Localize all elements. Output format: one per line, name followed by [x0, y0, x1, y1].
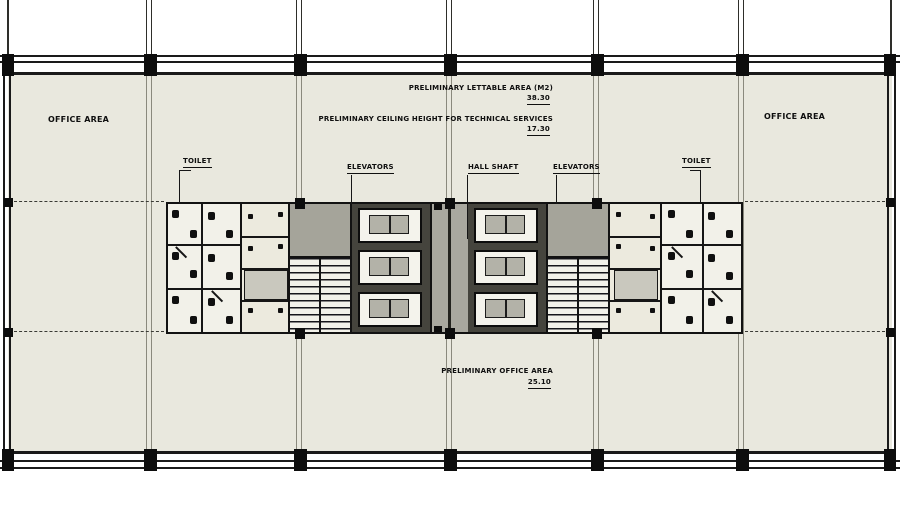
toilet-fixture — [726, 272, 733, 280]
wall-node — [592, 328, 602, 339]
toilet-fixture — [708, 298, 715, 306]
toilet-partition — [702, 204, 704, 332]
area-note-top-2-value: 17.30 — [527, 125, 550, 136]
toilet-fixture — [686, 316, 693, 324]
wall-node — [4, 328, 13, 337]
service-fixture — [650, 308, 655, 313]
toilet-partition — [168, 244, 240, 246]
gridline-b-floor — [151, 74, 152, 451]
gridline-f-top — [743, 0, 744, 55]
area-note-bottom: PRELIMINARY OFFICE AREA — [441, 367, 553, 376]
service-partition — [242, 236, 288, 238]
leader-toilet-right-foot — [690, 170, 701, 171]
column — [144, 54, 157, 76]
toilet-partition — [168, 288, 240, 290]
gridline-f-top — [738, 0, 739, 55]
wall-node — [886, 328, 895, 337]
left-end-wall-outer — [3, 55, 5, 470]
stair-left — [290, 204, 352, 332]
corridor-wall — [448, 204, 451, 332]
toilet-fixture — [668, 252, 675, 260]
service-fixture — [278, 244, 283, 249]
area-note-top-2: PRELIMINARY CEILING HEIGHT FOR TECHNICAL… — [319, 115, 553, 124]
elevator-shaft — [358, 292, 422, 327]
elevators-label-right: ELEVATORS — [553, 163, 600, 174]
right-end-wall-outer — [894, 55, 896, 470]
service-partition — [242, 300, 288, 302]
toilet-label-right: TOILET — [682, 157, 711, 168]
leader-hall-shaft — [467, 175, 468, 239]
service-rooms-right — [610, 204, 662, 332]
wall-stub — [434, 326, 442, 332]
gridline-b-top — [146, 0, 147, 55]
leader-elevators-left — [351, 175, 352, 204]
area-note-bottom-value: 25.10 — [528, 378, 551, 389]
core-top-dashed-line-right — [745, 201, 885, 202]
left-corner-gridline-top — [7, 0, 9, 55]
service-fixture — [248, 214, 253, 219]
elevator-car — [485, 299, 525, 318]
toilet-fixture — [668, 296, 675, 304]
service-fixture — [616, 308, 621, 313]
right-corner-gridline-top — [890, 0, 892, 55]
service-partition — [610, 300, 660, 302]
wall-node — [592, 198, 602, 209]
wall-node — [4, 198, 13, 207]
gridline-e-top — [598, 0, 599, 55]
toilet-fixture — [172, 296, 179, 304]
hall-shaft-corridor — [432, 204, 468, 332]
service-shaft — [244, 270, 288, 300]
service-fixture — [650, 214, 655, 219]
elevator-shaft — [358, 208, 422, 243]
elevator-car — [369, 299, 409, 318]
gridline-d-top — [446, 0, 447, 55]
toilet-room-left — [168, 204, 242, 332]
column — [736, 449, 749, 471]
column — [144, 449, 157, 471]
elevator-car — [485, 257, 525, 276]
toilet-fixture — [726, 230, 733, 238]
toilet-fixture — [208, 212, 215, 220]
column — [591, 449, 604, 471]
service-fixture — [248, 308, 253, 313]
toilet-fixture — [686, 230, 693, 238]
toilet-fixture — [172, 210, 179, 218]
wall-stub — [434, 204, 442, 210]
elevator-shaft — [474, 208, 538, 243]
toilet-fixture — [208, 254, 215, 262]
elevator-bank-right — [468, 204, 548, 332]
hall-shaft-label: HALL SHAFT — [468, 163, 519, 174]
toilet-partition — [662, 244, 741, 246]
stair-divider-right — [577, 258, 579, 332]
service-rooms-left — [242, 204, 290, 332]
column — [2, 449, 14, 471]
toilet-fixture — [726, 316, 733, 324]
toilet-fixture — [226, 316, 233, 324]
column — [444, 54, 457, 76]
wall-node — [445, 198, 455, 209]
gridline-c-top — [301, 0, 302, 55]
toilet-fixture — [686, 270, 693, 278]
wall-node — [295, 198, 305, 209]
toilet-fixture — [226, 230, 233, 238]
service-shaft — [614, 270, 658, 300]
right-end-wall-inner — [887, 55, 889, 470]
area-note-top-1: PRELIMINARY LETTABLE AREA (M2) — [409, 84, 553, 93]
gridline-f-floor — [743, 74, 744, 451]
column — [2, 54, 14, 76]
stair-divider-left — [319, 258, 321, 332]
service-fixture — [248, 246, 253, 251]
gridline-c-top — [296, 0, 297, 55]
leader-toilet-left — [179, 170, 180, 204]
wall-node — [445, 328, 455, 339]
elevator-lobby-left — [290, 204, 350, 258]
core-top-dashed-line-left — [14, 201, 164, 202]
toilet-fixture — [708, 254, 715, 262]
office-area-label-left: OFFICE AREA — [48, 115, 109, 124]
elevator-car — [369, 215, 409, 234]
office-area-label-right: OFFICE AREA — [764, 112, 825, 121]
column — [591, 54, 604, 76]
service-partition — [610, 236, 660, 238]
toilet-fixture — [190, 270, 197, 278]
toilet-fixture — [190, 316, 197, 324]
column — [884, 449, 896, 471]
elevator-lobby-right — [548, 204, 608, 258]
left-end-wall-inner — [9, 55, 11, 470]
service-fixture — [278, 308, 283, 313]
toilet-fixture — [208, 298, 215, 306]
elevator-car — [485, 215, 525, 234]
leader-toilet-right — [700, 170, 701, 204]
service-fixture — [650, 246, 655, 251]
column — [294, 54, 307, 76]
toilet-partition — [201, 204, 203, 332]
elevator-bank-left — [352, 204, 432, 332]
core-bottom-dashed-line-right — [745, 331, 885, 332]
toilet-fixture — [190, 230, 197, 238]
gridline-b-top — [151, 0, 152, 55]
column — [444, 449, 457, 471]
toilet-fixture — [226, 272, 233, 280]
gridline-e-top — [593, 0, 594, 55]
stair-right — [548, 204, 610, 332]
wall-node — [886, 198, 895, 207]
elevator-shaft — [474, 292, 538, 327]
toilet-fixture — [172, 252, 179, 260]
toilet-label-left: TOILET — [183, 157, 212, 168]
core-bottom-dashed-line-left — [14, 331, 164, 332]
gridline-d-top — [451, 0, 452, 55]
wall-node — [295, 328, 305, 339]
service-fixture — [278, 212, 283, 217]
toilet-fixture — [668, 210, 675, 218]
service-fixture — [616, 244, 621, 249]
column — [884, 54, 896, 76]
toilet-fixture — [708, 212, 715, 220]
elevators-label-left: ELEVATORS — [347, 163, 394, 174]
column — [294, 449, 307, 471]
elevator-car — [369, 257, 409, 276]
toilet-partition — [662, 288, 741, 290]
service-fixture — [616, 212, 621, 217]
column — [736, 54, 749, 76]
floor-plan-drawing: PRELIMINARY LETTABLE AREA (M2) 38.30 PRE… — [0, 0, 900, 530]
gridline-b-floor — [146, 74, 147, 451]
service-core — [166, 202, 743, 334]
elevator-shaft — [474, 250, 538, 285]
leader-elevators-right — [556, 175, 557, 204]
area-note-top-1-value: 38.30 — [527, 94, 550, 105]
toilet-room-right — [662, 204, 741, 332]
elevator-shaft — [358, 250, 422, 285]
leader-toilet-left-foot — [179, 170, 191, 171]
